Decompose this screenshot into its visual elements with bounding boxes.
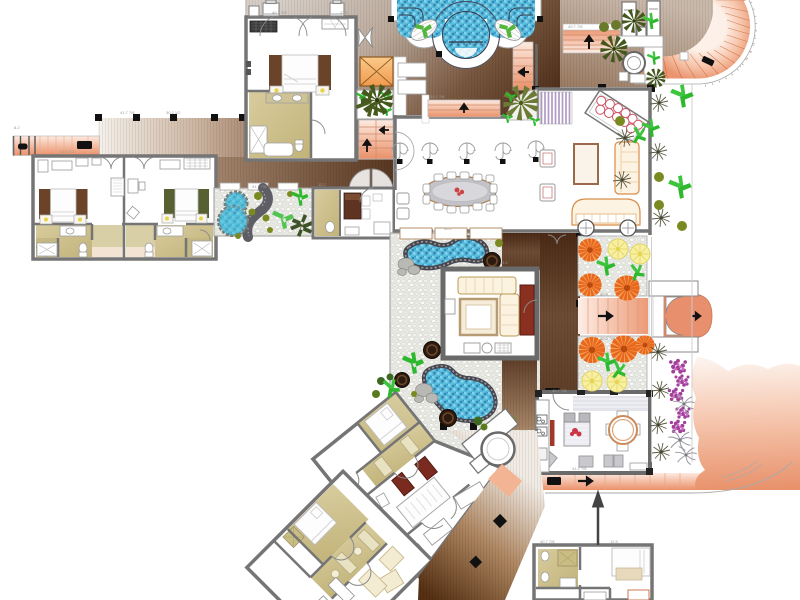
svg-text:41.2 7/8: 41.2 7/8: [572, 466, 587, 471]
svg-text:40.2 7/8: 40.2 7/8: [600, 336, 615, 341]
svg-text:12.7: 12.7: [318, 182, 327, 187]
svg-text:22.5: 22.5: [340, 10, 349, 15]
svg-text:12.4 1/2: 12.4 1/2: [60, 149, 75, 154]
svg-text:40.5: 40.5: [600, 292, 609, 297]
svg-text:8.2: 8.2: [14, 125, 20, 130]
svg-text:40.2: 40.2: [444, 226, 453, 231]
svg-text:40.7 7/8: 40.7 7/8: [568, 24, 583, 29]
svg-text:12.5: 12.5: [610, 539, 619, 544]
svg-text:40.7 7/8: 40.7 7/8: [552, 388, 567, 393]
svg-text:40.7 7/8: 40.7 7/8: [540, 539, 555, 544]
svg-text:41.7 7/8: 41.7 7/8: [120, 110, 135, 115]
svg-text:30.2 1/2: 30.2 1/2: [166, 110, 181, 115]
svg-text:40.7 7/8: 40.7 7/8: [272, 10, 287, 15]
svg-text:12.2: 12.2: [500, 260, 509, 265]
svg-text:40.2 7/8: 40.2 7/8: [430, 94, 445, 99]
svg-text:41.7 7/8: 41.7 7/8: [252, 184, 267, 189]
